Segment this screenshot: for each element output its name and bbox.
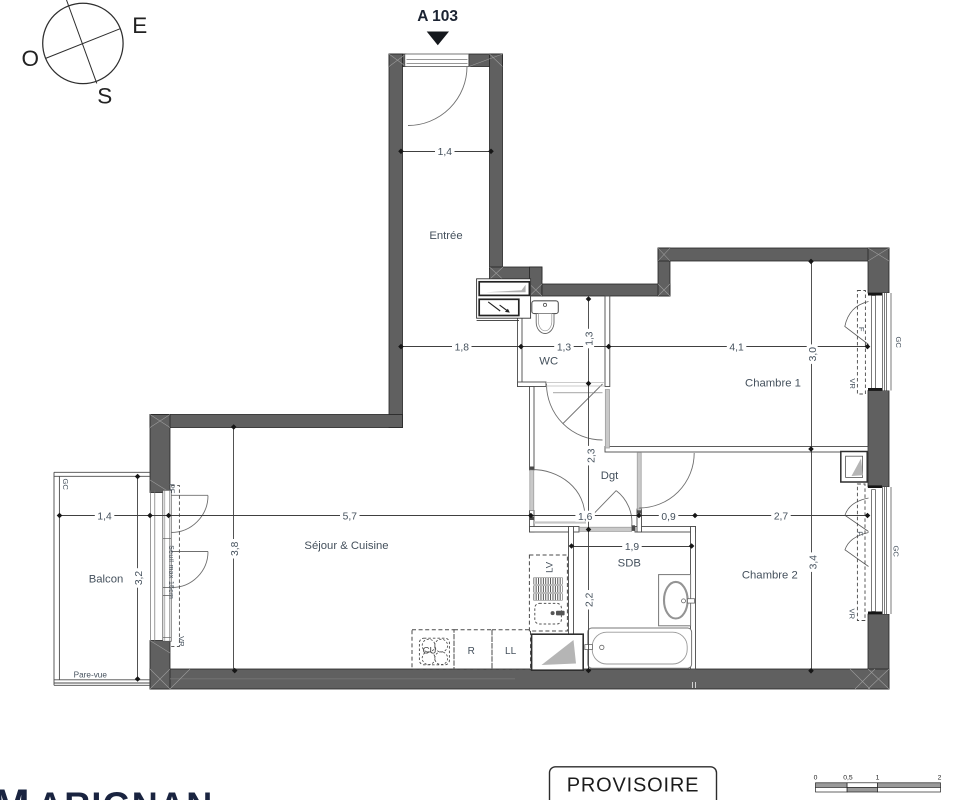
svg-text:2,7: 2,7 <box>774 511 789 522</box>
svg-text:3,0: 3,0 <box>808 347 819 362</box>
svg-text:WC: WC <box>539 355 558 367</box>
svg-text:Seuil max 15cm: Seuil max 15cm <box>168 545 175 599</box>
svg-text:GC: GC <box>894 337 903 349</box>
svg-text:1,6: 1,6 <box>578 512 593 523</box>
svg-text:1,4: 1,4 <box>438 147 453 158</box>
svg-text:F: F <box>857 327 866 332</box>
svg-text:4,1: 4,1 <box>729 342 744 353</box>
svg-text:Entrée: Entrée <box>429 230 462 242</box>
svg-text:ARIGNAN: ARIGNAN <box>37 785 213 800</box>
svg-text:1,8: 1,8 <box>455 343 470 354</box>
svg-text:Chambre 1: Chambre 1 <box>745 377 801 389</box>
svg-text:VR: VR <box>177 636 186 647</box>
svg-text:VR: VR <box>848 378 857 389</box>
svg-text:0,9: 0,9 <box>661 512 676 523</box>
svg-text:2,3: 2,3 <box>586 448 597 463</box>
svg-text:Chambre 2: Chambre 2 <box>742 570 798 582</box>
svg-text:O: O <box>21 46 39 71</box>
svg-text:2: 2 <box>938 775 942 782</box>
svg-text:1: 1 <box>876 775 880 782</box>
svg-text:Balcon: Balcon <box>89 574 124 586</box>
svg-text:0,5: 0,5 <box>843 775 853 782</box>
svg-text:PF: PF <box>168 484 177 494</box>
svg-text:M: M <box>0 781 30 800</box>
svg-text:3,8: 3,8 <box>230 541 241 556</box>
svg-text:1,3: 1,3 <box>584 331 595 346</box>
svg-text:CU: CU <box>423 646 437 657</box>
svg-text:GC: GC <box>61 479 70 491</box>
svg-text:0: 0 <box>814 775 818 782</box>
svg-text:S: S <box>97 83 112 108</box>
svg-text:Dgt: Dgt <box>601 470 619 482</box>
svg-text:A 103: A 103 <box>417 8 458 25</box>
svg-text:Séjour & Cuisine: Séjour & Cuisine <box>304 540 388 552</box>
svg-text:2,2: 2,2 <box>584 592 595 607</box>
svg-text:1,4: 1,4 <box>97 511 112 522</box>
svg-text:3,4: 3,4 <box>808 555 819 570</box>
svg-text:SDB: SDB <box>618 557 641 569</box>
svg-text:5,7: 5,7 <box>343 511 358 522</box>
svg-text:Pare-vue: Pare-vue <box>74 670 108 679</box>
svg-text:R: R <box>468 646 475 657</box>
svg-text:LV: LV <box>545 561 556 573</box>
svg-text:F: F <box>855 531 864 536</box>
svg-text:1,3: 1,3 <box>557 343 572 354</box>
svg-text:1,9: 1,9 <box>625 542 640 553</box>
svg-text:VR: VR <box>847 609 856 620</box>
svg-text:E: E <box>132 13 147 38</box>
svg-text:PROVISOIRE: PROVISOIRE <box>567 774 699 796</box>
svg-text:3,2: 3,2 <box>134 571 145 586</box>
svg-text:GC: GC <box>892 546 901 558</box>
svg-text:LL: LL <box>505 646 517 657</box>
